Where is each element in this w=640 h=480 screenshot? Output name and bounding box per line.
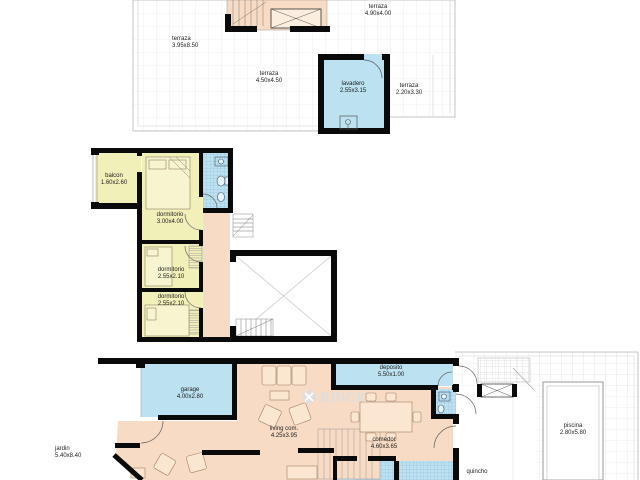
toilet xyxy=(217,176,225,186)
room-label-terraza-right: terraza 2.20x3.30 xyxy=(396,83,422,97)
sink xyxy=(442,394,447,399)
hallway xyxy=(203,213,230,337)
room-label-balcon: balcon 1.60x2.60 xyxy=(101,173,127,187)
dining-table xyxy=(360,402,412,432)
roof-stair-bulkhead xyxy=(225,0,330,32)
pergola-grid xyxy=(478,358,530,382)
room-label-garage: garage 4.00x2.80 xyxy=(177,387,203,401)
room-label-quincho: quincho xyxy=(466,469,487,476)
floor-plan-drawing xyxy=(0,0,640,480)
upper-floor-plan xyxy=(91,148,337,342)
room-label-dormitorio-2: dormitorio 2.55x2.10 xyxy=(158,267,185,281)
roof-terrace-plan xyxy=(133,0,455,134)
room-label-comedor: comedor 4.60x3.65 xyxy=(371,437,397,451)
room-label-terraza-left: terraza 3.95x8.50 xyxy=(172,36,198,50)
room-label-terraza-center: terraza 4.50x4.50 xyxy=(256,71,282,85)
brand-watermark: BRICK xyxy=(301,389,367,405)
toilette-door-arc xyxy=(456,394,476,414)
desk xyxy=(287,466,317,479)
pillar-planter xyxy=(477,384,517,397)
room-label-deposito: deposito 5.50x1.00 xyxy=(378,365,404,379)
room-label-piscina: piscina 2.80x5.80 xyxy=(560,423,586,437)
room-label-jardin: jardin 5.40x8.40 xyxy=(55,446,81,460)
toilet xyxy=(438,405,444,413)
brick-diamond-logo-icon xyxy=(301,389,317,405)
room-label-dormitorio-3: dormitorio 2.55x2.10 xyxy=(158,294,185,308)
room-label-terraza-top-right: terraza 4.90x4.00 xyxy=(365,4,391,18)
ground-floor-plan xyxy=(98,352,638,480)
room-label-lavadero: lavadero 2.55x3.15 xyxy=(340,81,366,95)
floor-plan-canvas: terraza 3.95x8.50 terraza 4.90x4.00 terr… xyxy=(0,0,640,480)
sofa xyxy=(262,366,276,385)
room-label-living: living com. 4.25x3.95 xyxy=(270,426,298,440)
sink xyxy=(219,159,224,164)
coffee-table xyxy=(270,391,289,400)
brand-watermark-text: BRICK xyxy=(320,389,367,405)
room-label-dormitorio-1: dormitorio 3.00x4.00 xyxy=(157,212,184,226)
bidet xyxy=(218,193,225,202)
